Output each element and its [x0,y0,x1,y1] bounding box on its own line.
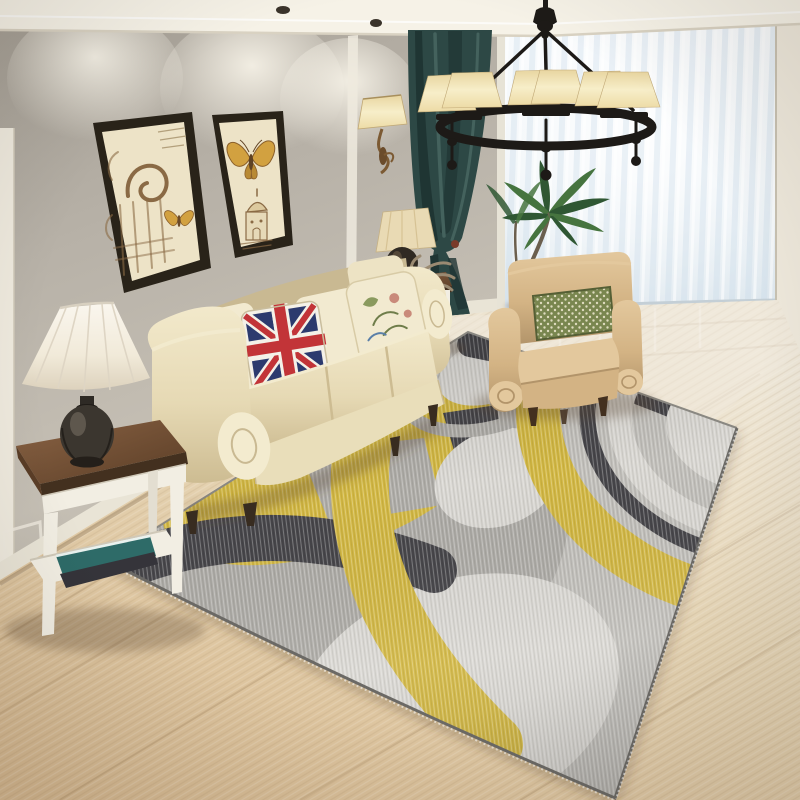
photo-vignette [0,0,800,800]
scene-canvas [0,0,800,800]
living-room-photo [0,0,800,800]
